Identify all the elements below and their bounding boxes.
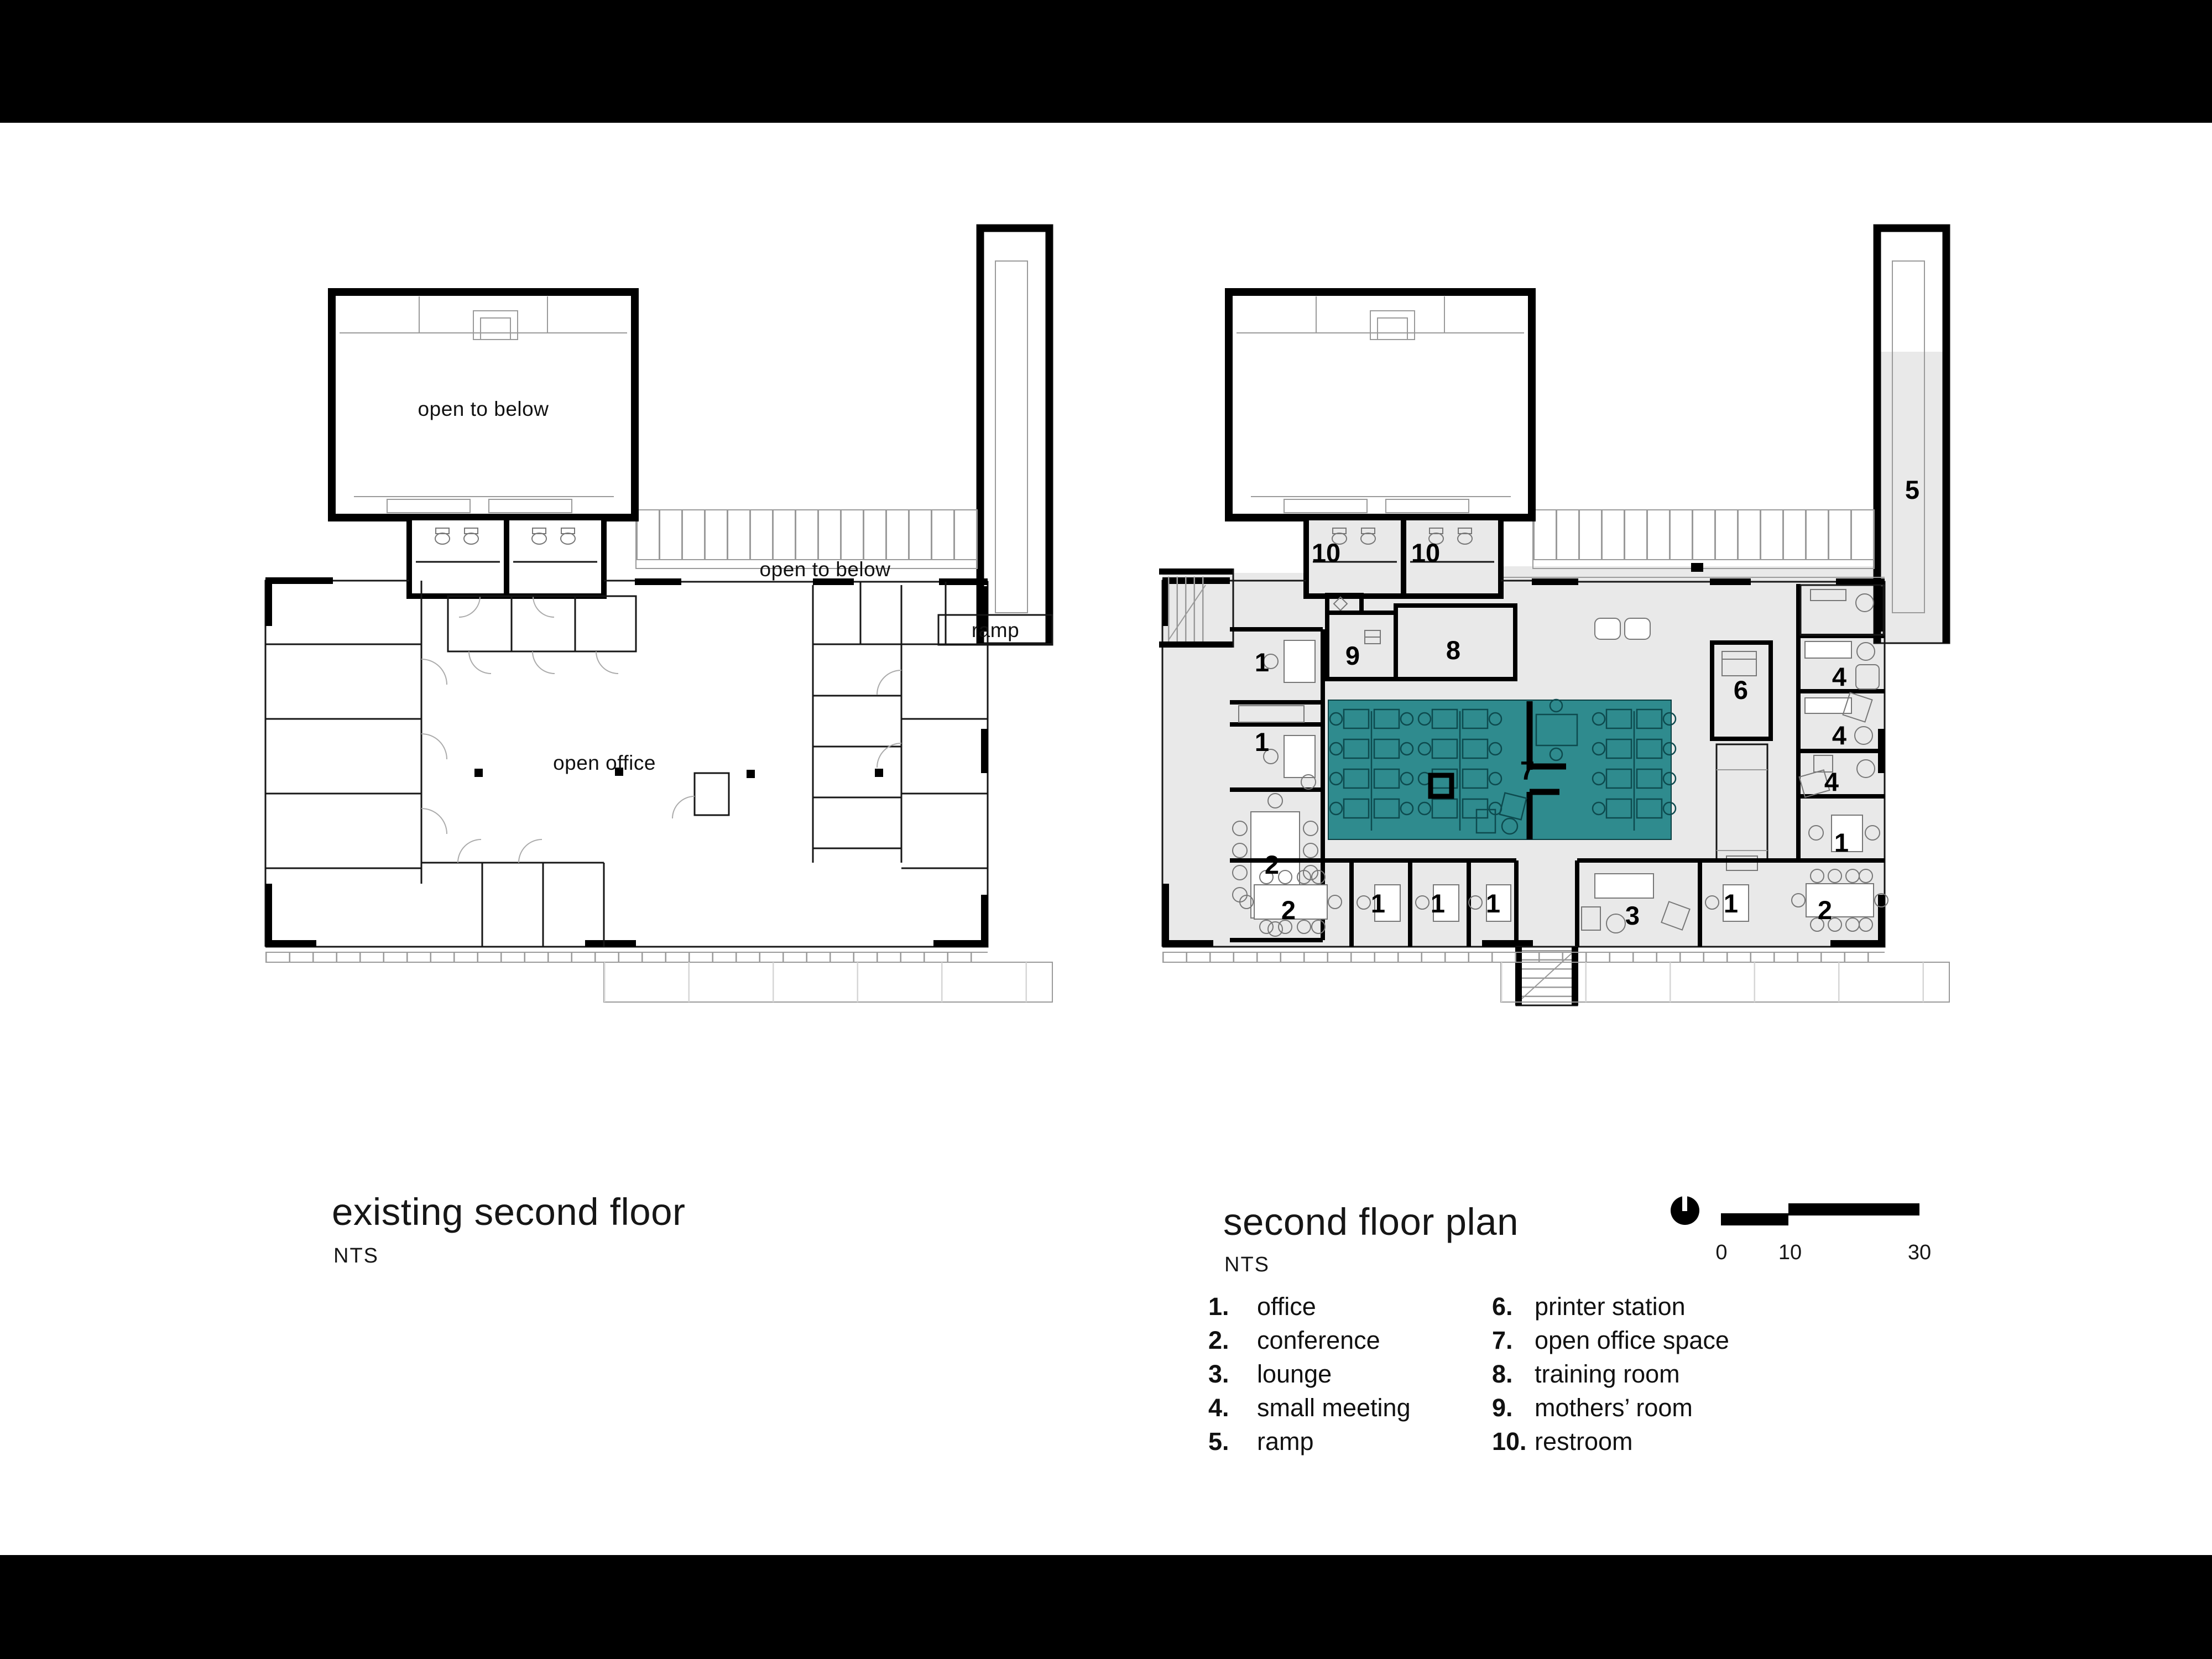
room-number-label: 10: [1312, 538, 1340, 567]
room-number-label: 1: [1431, 889, 1445, 918]
scale-bar-segment-10-30: [1788, 1203, 1919, 1215]
proposed-plan-title: second floor plan: [1223, 1200, 1519, 1244]
scale-bar: 0 10 30: [1714, 1200, 1941, 1283]
room-number-label: 9: [1345, 641, 1360, 670]
north-arrow-icon: [1671, 1196, 1699, 1225]
legend-item-conference: 2.conference: [1208, 1323, 1411, 1357]
legend-item-printer-station: 6.printer station: [1492, 1290, 1729, 1323]
room-number-label: 2: [1265, 850, 1279, 879]
legend-item-open-office-space: 7.open office space: [1492, 1323, 1729, 1357]
legend-column-2: 6.printer station 7.open office space 8.…: [1492, 1290, 1729, 1458]
room-number-label: 8: [1446, 635, 1460, 665]
legend-item-small-meeting: 4.small meeting: [1208, 1391, 1411, 1425]
legend-item-ramp: 5.ramp: [1208, 1425, 1411, 1458]
room-number-label: 10: [1411, 538, 1440, 567]
existing-plan-title: existing second floor: [332, 1190, 686, 1234]
room-number-label: 7: [1520, 756, 1535, 785]
room-number-label: 6: [1734, 675, 1748, 705]
room-number-label: 2: [1281, 895, 1296, 925]
scale-tick-0: 0: [1715, 1241, 1727, 1265]
plan-note-label: open to below: [418, 398, 549, 420]
proposed-plan-drawing: [1159, 225, 1949, 1005]
room-number-label: 3: [1625, 901, 1640, 930]
plan-note-label: open to below: [760, 558, 891, 581]
existing-plan-drawing: [265, 225, 1052, 1002]
legend-item-office: 1.office: [1208, 1290, 1411, 1323]
room-number-label: 2: [1818, 895, 1832, 925]
room-number-label: 4: [1832, 662, 1846, 691]
room-number-label: 1: [1724, 889, 1738, 918]
room-number-label: 1: [1486, 889, 1500, 918]
room-number-label: 4: [1832, 721, 1846, 750]
plan-note-label: open office: [553, 752, 656, 774]
plan-note-label: ramp: [972, 619, 1019, 641]
scale-tick-30: 30: [1908, 1241, 1931, 1265]
legend-column-1: 1.office 2.conference 3.lounge 4.small m…: [1208, 1290, 1411, 1458]
room-number-label: 1: [1255, 648, 1269, 677]
room-number-label: 1: [1255, 727, 1269, 757]
legend-item-mothers-room: 9.mothers’ room: [1492, 1391, 1729, 1425]
room-number-label: 5: [1905, 475, 1919, 504]
legend-item-training-room: 8.training room: [1492, 1357, 1729, 1391]
legend-item-restroom: 10.restroom: [1492, 1425, 1729, 1458]
room-number-label: 1: [1834, 828, 1849, 857]
existing-plan-scale-note: NTS: [333, 1244, 379, 1268]
proposed-plan-scale-note: NTS: [1224, 1253, 1270, 1277]
room-number-label: 1: [1371, 889, 1385, 918]
floor-plan-sheet: open to belowopen to belowrampopen offic…: [0, 0, 2212, 1659]
structural-columns: [474, 768, 883, 778]
legend-item-lounge: 3.lounge: [1208, 1357, 1411, 1391]
room-number-label: 4: [1824, 767, 1839, 796]
scale-tick-10: 10: [1778, 1241, 1802, 1265]
scale-bar-segment-0-10: [1721, 1213, 1788, 1225]
